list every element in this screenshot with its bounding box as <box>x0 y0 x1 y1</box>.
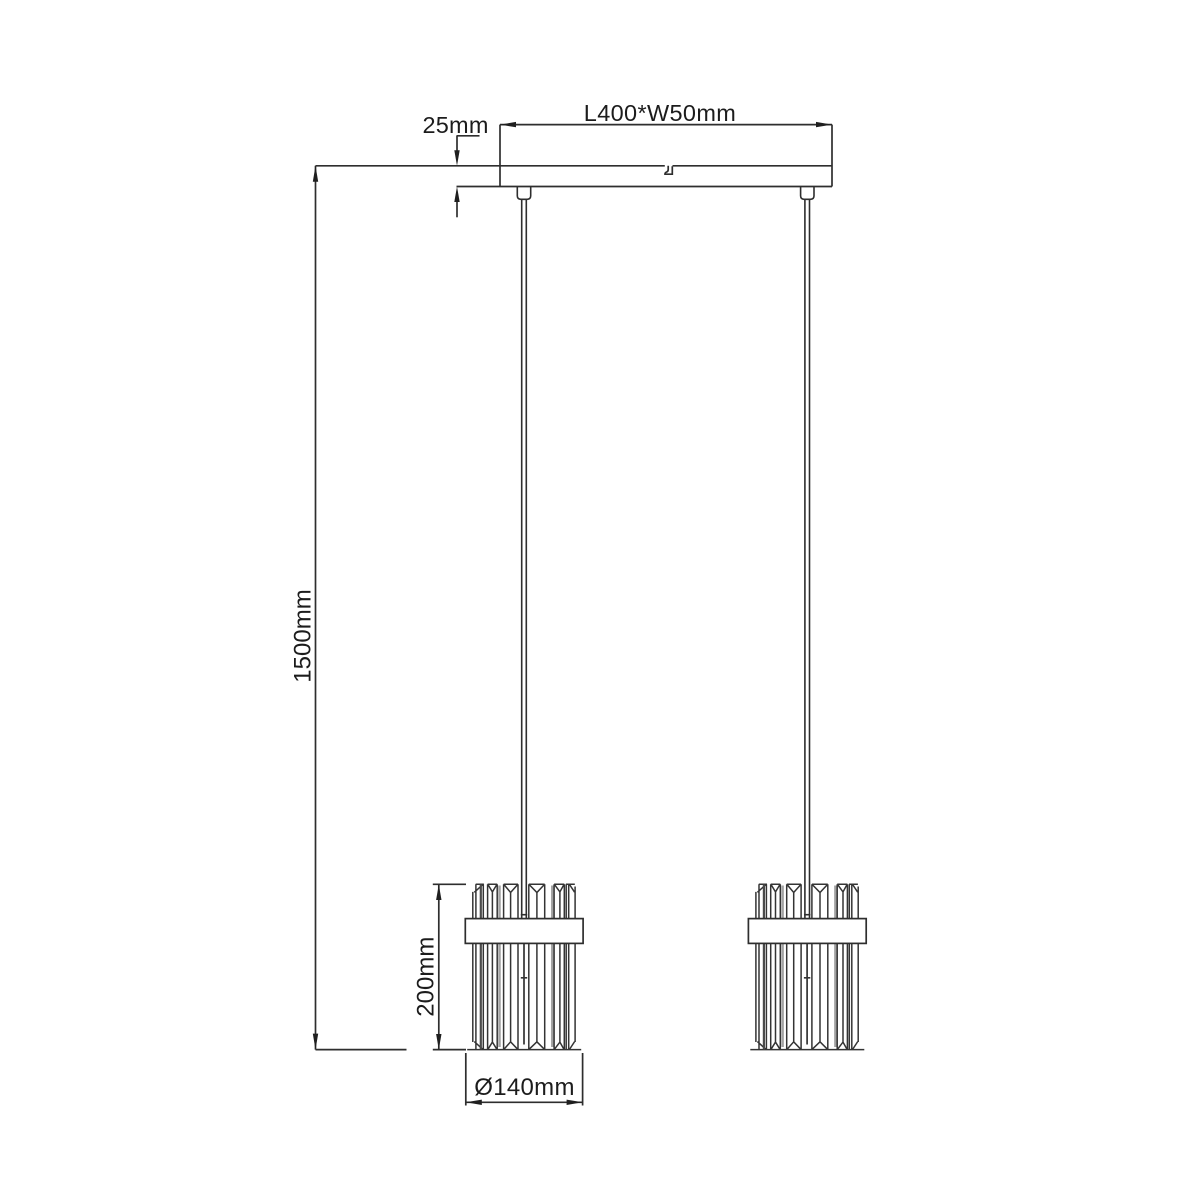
svg-text:200mm: 200mm <box>413 937 440 1017</box>
svg-text:25mm: 25mm <box>423 112 489 138</box>
svg-text:L400*W50mm: L400*W50mm <box>584 100 736 126</box>
svg-text:1500mm: 1500mm <box>290 589 317 682</box>
svg-text:Ø140mm: Ø140mm <box>474 1074 575 1101</box>
